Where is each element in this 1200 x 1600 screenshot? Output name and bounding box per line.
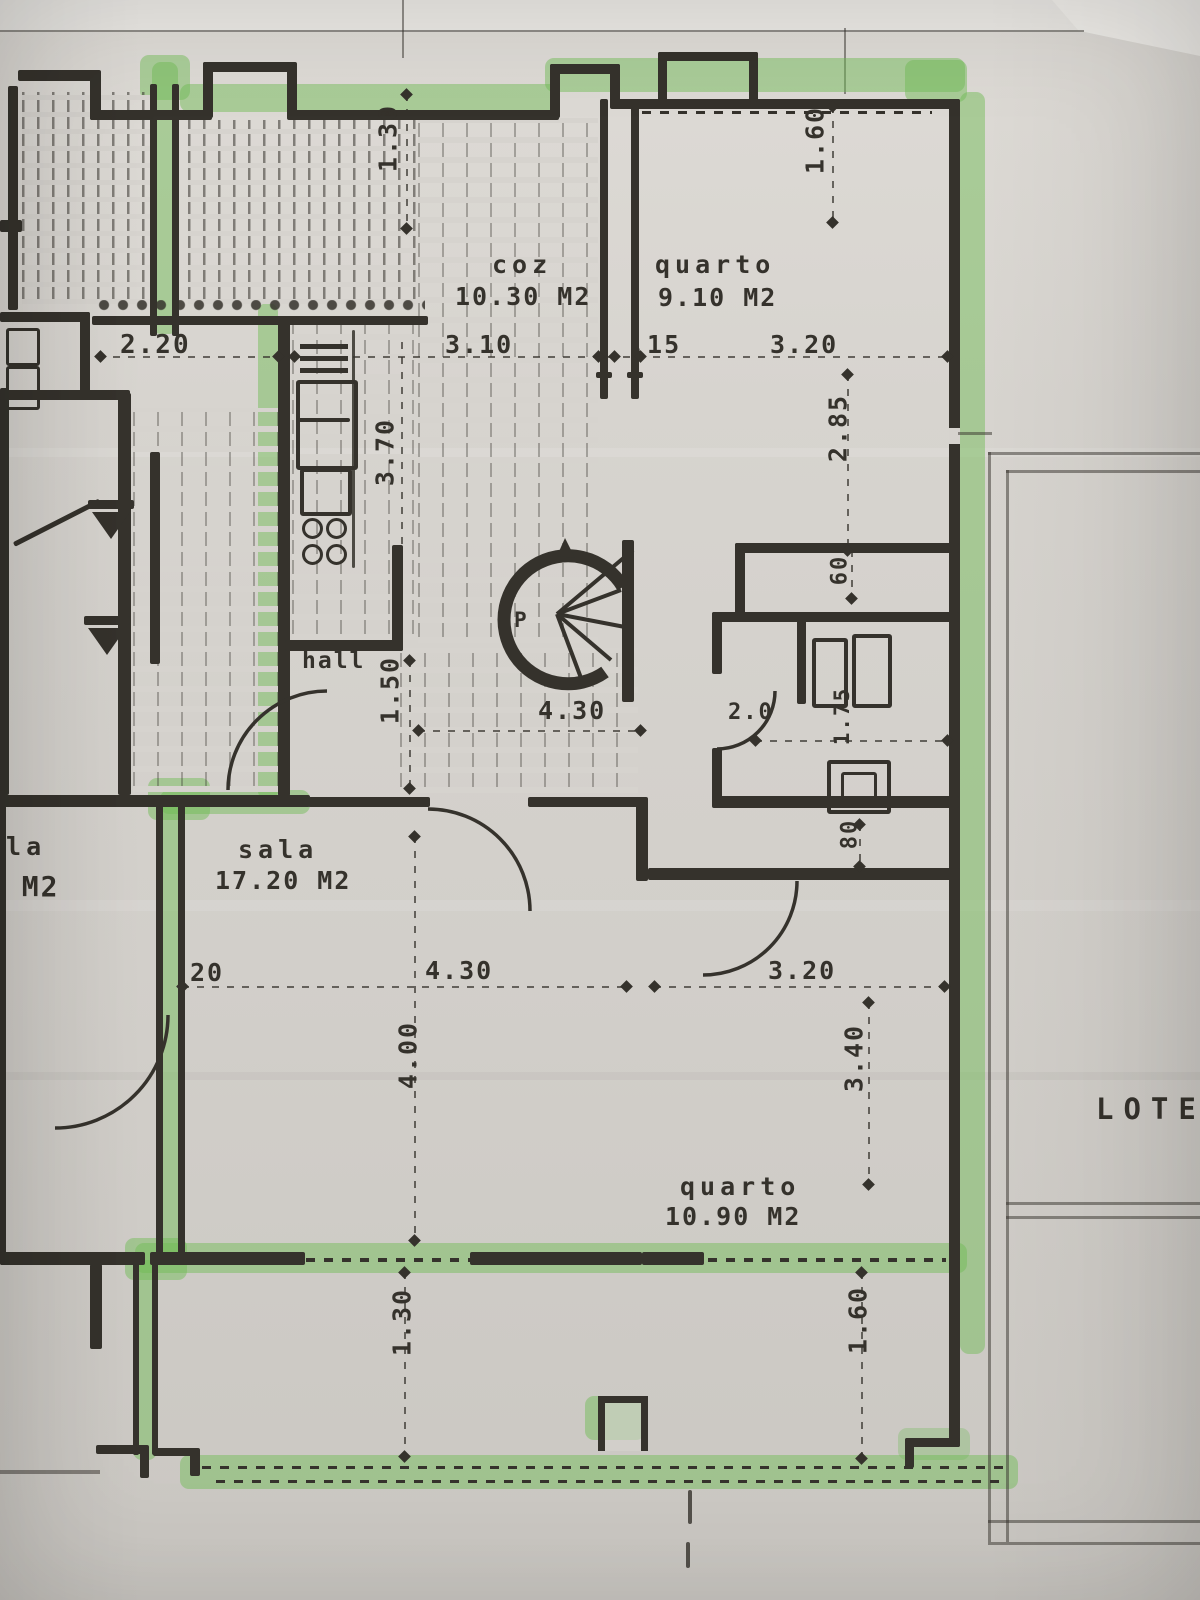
dimension-line xyxy=(182,986,626,988)
lot-boundary-line xyxy=(1006,1216,1200,1219)
counter-fixture xyxy=(300,468,352,516)
balcony-railing xyxy=(216,1480,1008,1483)
wall xyxy=(150,84,157,336)
wall xyxy=(152,1263,158,1455)
window-line xyxy=(306,1258,472,1262)
dimension-arrow xyxy=(862,996,875,1009)
room-area-kitchen: 10.30 M2 xyxy=(455,282,591,311)
wall xyxy=(0,390,130,400)
wall xyxy=(712,612,722,674)
wall xyxy=(0,312,90,322)
dim-corridor: 4.30 xyxy=(538,696,606,725)
wall xyxy=(80,312,90,400)
wall xyxy=(150,1252,305,1265)
window-sill xyxy=(95,300,425,316)
lot-boundary-line xyxy=(1006,1202,1200,1205)
wall xyxy=(172,84,179,336)
wall xyxy=(949,99,960,1447)
wall-tick xyxy=(596,372,612,378)
dim-wall-offset: .15 xyxy=(630,330,681,359)
stair-rail xyxy=(150,452,160,664)
stove-burner-icon xyxy=(302,518,323,539)
dimension-arrow xyxy=(620,980,633,993)
wall xyxy=(0,220,22,232)
wall xyxy=(18,70,98,81)
dimension-line xyxy=(401,342,403,548)
kitchen-sink xyxy=(296,380,358,470)
dimension-line xyxy=(409,660,411,788)
fixture xyxy=(6,366,40,410)
fixture xyxy=(6,328,40,366)
dim-hall-width: 1.50 xyxy=(376,656,405,724)
dimension-arrow xyxy=(94,350,107,363)
wall xyxy=(90,1264,102,1349)
wall xyxy=(642,1252,704,1265)
dimension-arrow xyxy=(862,1178,875,1191)
dimension-line xyxy=(832,106,834,222)
terrace-hatch xyxy=(22,92,150,304)
room-label-bedroom1: quarto xyxy=(655,250,775,279)
centerline-tick xyxy=(686,1542,690,1568)
dimension-line xyxy=(654,986,944,988)
wall xyxy=(203,62,296,72)
room-label-bedroom2: quarto xyxy=(680,1172,800,1201)
dimension-arrow xyxy=(408,830,421,843)
wall xyxy=(735,543,745,622)
wall xyxy=(0,790,6,1265)
dim-kitchen-depth: 3.70 xyxy=(371,418,400,486)
extension-line xyxy=(402,0,404,58)
kitchen-sink xyxy=(296,418,350,422)
bath-fixture xyxy=(841,772,877,802)
wall xyxy=(905,1438,914,1468)
dim-bedroom2-width: 3.20 xyxy=(768,956,836,985)
dim-passage: 80 xyxy=(838,819,863,850)
dimension-line xyxy=(406,94,408,228)
stove-burner-icon xyxy=(326,518,347,539)
neighbor-room-label: ala xyxy=(0,832,46,861)
wall xyxy=(0,388,9,795)
dim-bedroom1-depth: 2.85 xyxy=(824,394,853,462)
stair-arrow-icon xyxy=(88,628,126,655)
dimension-arrow xyxy=(608,350,621,363)
floor-plan-photo: coz 10.30 M2 quarto 9.10 M2 sala 17.20 M… xyxy=(0,0,1200,1600)
highlighter-mark xyxy=(960,92,985,1354)
wall xyxy=(0,1252,145,1265)
dim-balcony-bottom-left: 1.30 xyxy=(388,1288,417,1356)
dim-bedroom1-width: 3.20 xyxy=(770,330,838,359)
stair-arrow-icon xyxy=(92,512,130,539)
highlighter-mark xyxy=(180,1455,1018,1489)
wall xyxy=(8,86,18,310)
wall xyxy=(133,1263,139,1455)
wall xyxy=(658,52,758,61)
wall xyxy=(470,1252,642,1265)
reference-line xyxy=(0,30,1084,32)
wall xyxy=(178,795,185,1263)
dimension-line xyxy=(418,730,640,732)
balcony-pillar xyxy=(598,1396,648,1451)
room-label-kitchen: coz xyxy=(492,250,552,279)
wall-tick xyxy=(627,372,643,378)
wall xyxy=(118,393,131,795)
dim-balcony-top: 1.30 xyxy=(374,104,403,172)
arrow-icon xyxy=(557,538,575,558)
room-area-living: 17.20 M2 xyxy=(215,866,351,895)
stove-burner-icon xyxy=(302,544,323,565)
dim-balcony-bottom-right: 1.60 xyxy=(844,1286,873,1354)
stair-break-line xyxy=(13,499,101,547)
spiral-staircase xyxy=(473,532,643,702)
neighbor-room-area: 0 M2 xyxy=(0,870,59,903)
wall xyxy=(92,316,428,325)
wall xyxy=(392,545,403,651)
lot-boundary-line xyxy=(988,452,1200,455)
window-line xyxy=(642,111,932,114)
wall xyxy=(190,1448,200,1476)
door-arc xyxy=(52,1012,172,1132)
dimension-arrow xyxy=(648,980,661,993)
bath-fixture xyxy=(852,634,892,708)
dim-bedroom2-depth: 3.40 xyxy=(840,1024,869,1092)
wall xyxy=(797,620,806,704)
room-area-bedroom2: 10.90 M2 xyxy=(665,1202,801,1231)
lot-boundary-line xyxy=(1006,470,1200,473)
door-arc xyxy=(225,688,330,793)
dim-living-width: 4.30 xyxy=(425,956,493,985)
highlighter-mark xyxy=(180,84,560,112)
dimension-arrow xyxy=(826,216,839,229)
dim-terrace-width: 2.20 xyxy=(120,330,191,360)
room-area-bedroom1: 9.10 M2 xyxy=(658,283,777,312)
wall xyxy=(156,795,163,1263)
room-label-hall: hall xyxy=(302,648,365,674)
dim-bath-width: 1.75 xyxy=(830,687,854,746)
balcony-railing xyxy=(202,1466,1008,1469)
stair-direction-label: P xyxy=(514,608,529,632)
wall xyxy=(528,797,646,807)
stair-arrow-icon xyxy=(84,616,130,625)
dim-living-offset: 20 xyxy=(190,958,224,987)
wall xyxy=(712,612,959,622)
paper-fold xyxy=(1052,0,1200,56)
reference-line xyxy=(958,432,992,435)
dimension-arrow xyxy=(841,368,854,381)
lot-boundary-line xyxy=(988,1520,1200,1523)
reference-line xyxy=(0,1470,100,1474)
dim-living-depth: 4.00 xyxy=(394,1021,423,1089)
lot-boundary-line xyxy=(988,1542,1200,1545)
dim-bath-door: 2.0 xyxy=(728,700,774,725)
wall xyxy=(0,795,160,807)
wall xyxy=(749,52,758,102)
wall xyxy=(658,52,667,102)
wall xyxy=(308,797,430,807)
wall xyxy=(636,797,648,881)
door-arc xyxy=(425,806,533,914)
stove-burner-icon xyxy=(326,544,347,565)
lot-label: LOTE xyxy=(1096,1092,1200,1126)
dim-closet: 60 xyxy=(828,555,853,586)
wall xyxy=(648,868,960,880)
highlighter-mark xyxy=(905,60,967,102)
window-line xyxy=(708,1258,946,1262)
dim-bedroom1-window: 1.60 xyxy=(801,106,830,174)
room-label-living: sala xyxy=(238,835,318,864)
paper-top-edge xyxy=(0,0,1200,32)
lot-boundary-line xyxy=(988,452,991,1542)
dim-kitchen-width: 3.10 xyxy=(445,330,513,359)
dimension-arrow xyxy=(845,592,858,605)
lot-boundary-line xyxy=(1006,470,1009,1542)
centerline-tick xyxy=(688,1490,692,1524)
wall xyxy=(140,1445,149,1478)
wall xyxy=(287,110,559,120)
wall-opening xyxy=(949,428,960,444)
